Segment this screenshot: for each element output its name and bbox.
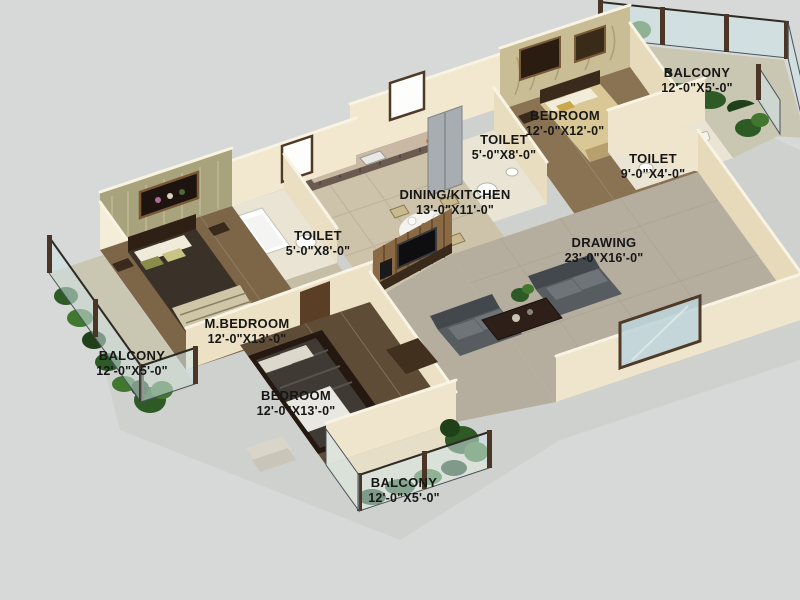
label-bedroom-top: BEDROOM [530,108,600,123]
dims-m-bedroom: 12'-0"X13'-0" [208,332,287,346]
label-toilet-right: TOILET [629,151,677,166]
basin [506,168,518,176]
dims-toilet-left: 5'-0"X8'-0" [286,244,350,258]
dims-toilet-right: 9'-0"X4'-0" [621,167,685,181]
label-toilet-top: TOILET [480,132,528,147]
floor-plan-render: BALCONY 12'-0"X5'-0" BEDROOM 12'-0"X12'-… [0,0,800,600]
dims-balcony-bottom: 12'-0"X5'-0" [368,491,440,505]
label-balcony-bottom: BALCONY [371,475,437,490]
dims-drawing: 23'-0"X16'-0" [565,251,644,265]
dims-bedroom-top: 12'-0"X12'-0" [526,124,605,138]
label-m-bedroom: M.BEDROOM [204,316,289,331]
label-toilet-left: TOILET [294,228,342,243]
dims-dining-kitchen: 13'-0"X11'-0" [416,203,494,217]
plant [751,113,769,127]
label-bedroom-bottom: BEDROOM [261,388,331,403]
dims-bedroom-bottom: 12'-0"X13'-0" [257,404,336,418]
floor-plan-canvas: BALCONY 12'-0"X5'-0" BEDROOM 12'-0"X12'-… [0,0,800,600]
dims-balcony-left: 12'-0"X5'-0" [96,364,168,378]
dims-balcony-top-right: 12'-0"X5'-0" [661,81,733,95]
label-drawing: DRAWING [572,235,637,250]
dims-toilet-top: 5'-0"X8'-0" [472,148,536,162]
label-dining-kitchen: DINING/KITCHEN [399,187,510,202]
label-balcony-top-right: BALCONY [664,65,730,80]
label-balcony-left: BALCONY [99,348,165,363]
